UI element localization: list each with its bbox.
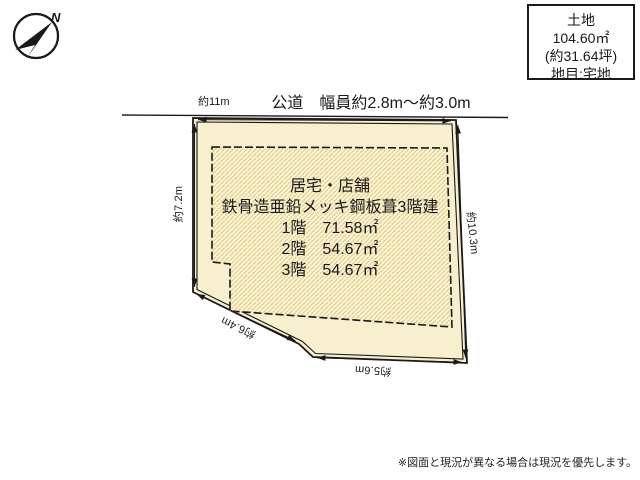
building-floor1-area: 1階 71.58㎡ <box>190 218 470 239</box>
compass: N <box>14 10 61 58</box>
lot-plan-diagram: N 土地 104.60㎡ (約31.64坪) 地目:宅地 公道 幅員約2.8m～… <box>0 0 640 480</box>
dimension-label-frontage: 約11m <box>198 93 230 109</box>
building-floor3-area: 3階 54.67㎡ <box>190 260 470 281</box>
building-use: 居宅・店舗 <box>190 176 470 197</box>
land-info-area: 104.60㎡ <box>529 29 633 47</box>
land-info-tsubo: (約31.64坪) <box>529 47 633 65</box>
compass-north-label: N <box>51 10 61 25</box>
road-edge-line <box>122 115 508 118</box>
dimension-label-left: 約7.2m <box>170 186 186 222</box>
building-structure: 鉄骨造亜鉛メッキ鋼板葺3階建 <box>190 197 470 218</box>
road-label: 公道 幅員約2.8m～約3.0m <box>271 89 470 113</box>
dimension-label-bottom: 約5.6m <box>354 362 391 380</box>
land-info-box: 土地 104.60㎡ (約31.64坪) 地目:宅地 <box>527 4 635 80</box>
building-floor2-area: 2階 54.67㎡ <box>190 239 470 260</box>
land-info-title: 土地 <box>529 11 633 29</box>
disclaimer-note: ※図面と現況が異なる場合は現況を優先します。 <box>398 454 637 470</box>
building-description: 居宅・店舗 鉄骨造亜鉛メッキ鋼板葺3階建 1階 71.58㎡ 2階 54.67㎡… <box>190 176 470 281</box>
land-info-category: 地目:宅地 <box>529 65 633 83</box>
